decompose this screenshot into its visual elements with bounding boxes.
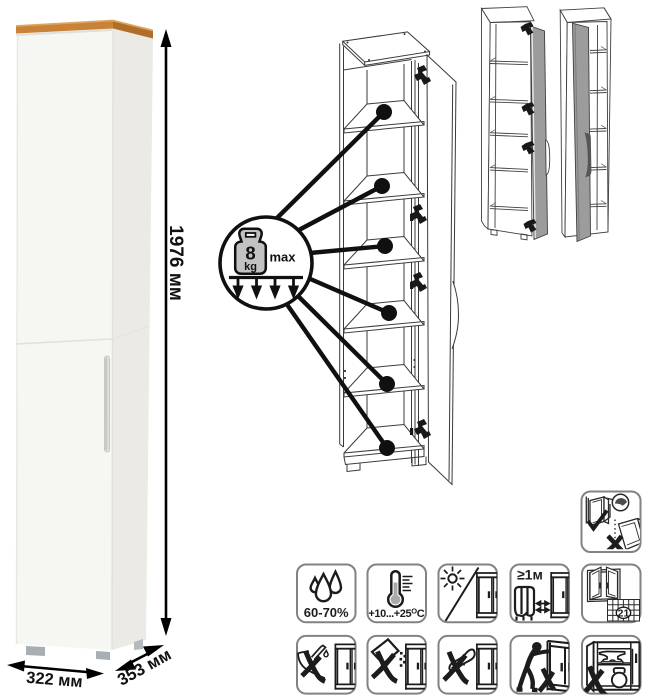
svg-text:+10...+25OC: +10...+25OC <box>368 607 424 620</box>
svg-text:353 мм: 353 мм <box>114 645 174 690</box>
svg-text:kg: kg <box>244 261 257 273</box>
svg-text:21: 21 <box>618 608 630 620</box>
svg-text:1976 мм: 1976 мм <box>165 225 186 301</box>
svg-text:322 мм: 322 мм <box>26 669 84 691</box>
svg-text:max: max <box>269 250 296 265</box>
svg-text:60-70%: 60-70% <box>304 605 349 620</box>
svg-text:≥1м: ≥1м <box>517 567 543 583</box>
